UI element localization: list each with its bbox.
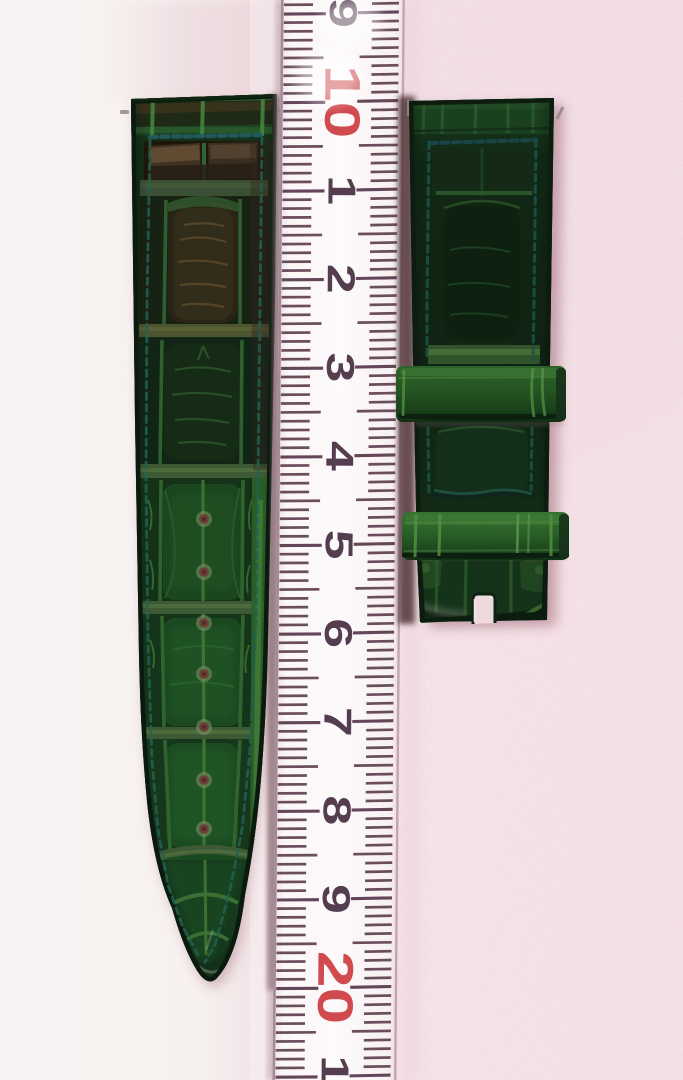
svg-text:20: 20 <box>307 951 363 1025</box>
svg-text:1: 1 <box>313 1055 357 1080</box>
svg-text:3: 3 <box>319 352 363 382</box>
svg-text:1: 1 <box>320 175 364 205</box>
svg-text:6: 6 <box>317 618 361 648</box>
svg-text:7: 7 <box>316 707 360 737</box>
svg-text:4: 4 <box>318 441 362 471</box>
svg-text:2: 2 <box>319 264 363 294</box>
svg-text:5: 5 <box>317 529 361 559</box>
svg-text:8: 8 <box>315 795 359 825</box>
svg-text:9: 9 <box>315 884 359 914</box>
